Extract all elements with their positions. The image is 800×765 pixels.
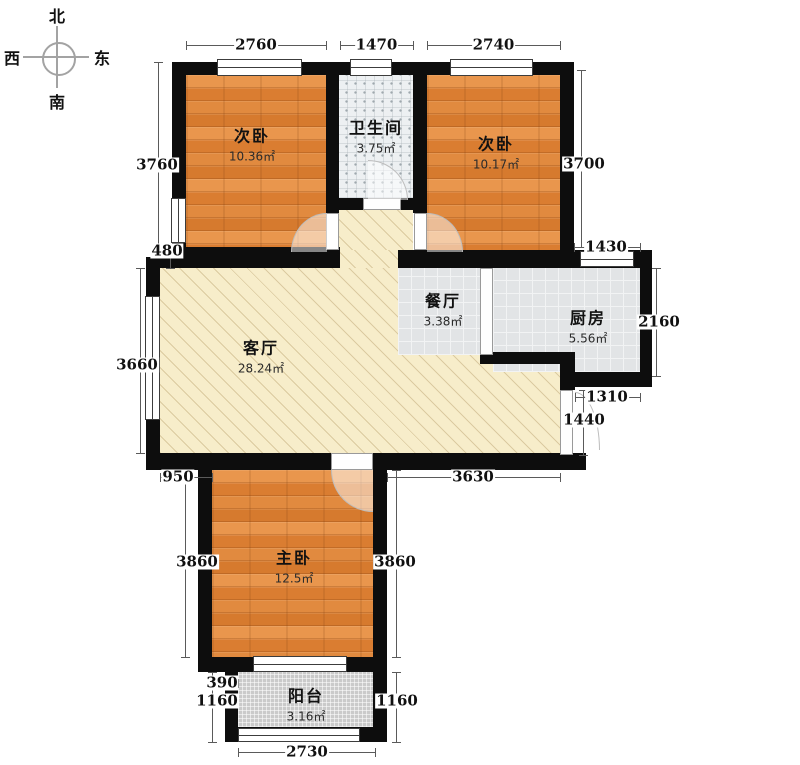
- dimension-tick: [575, 393, 576, 402]
- door-frame-bedroom-right: [414, 213, 427, 250]
- dimension-tick: [208, 742, 217, 743]
- door-frame-master: [331, 453, 373, 470]
- dimension-tick: [136, 268, 145, 269]
- dimension-tick: [392, 470, 401, 471]
- dimension-tick: [154, 62, 163, 63]
- room-name: 阳台: [287, 688, 326, 705]
- room-label-bedroom-right: 次卧 10.17㎡: [473, 136, 519, 173]
- wall-bedroom-right-south: [398, 250, 574, 268]
- dimension-tick: [427, 41, 428, 50]
- dimension-tick: [413, 41, 414, 50]
- compass-west-label: 西: [4, 45, 20, 69]
- window-bedroom-right-north: [450, 59, 533, 76]
- compass-circle: [42, 42, 76, 76]
- dimension-tick: [574, 243, 575, 252]
- dimension-label: 390: [205, 676, 238, 691]
- dimension-tick: [186, 41, 187, 50]
- dimension-tick: [560, 473, 561, 482]
- floor-hallway-lower: [338, 250, 398, 268]
- room-label-bathroom: 卫生间 3.75㎡: [349, 120, 403, 157]
- room-label-dining: 餐厅 3.38㎡: [424, 293, 463, 330]
- dimension-tick: [375, 748, 376, 757]
- dimension-label: 1470: [355, 38, 399, 53]
- door-frame-bedroom-left: [326, 213, 339, 250]
- room-area: 28.24㎡: [238, 360, 284, 377]
- dimension-tick: [579, 455, 588, 456]
- room-area: 10.36㎡: [229, 148, 275, 165]
- dimension-tick: [340, 41, 341, 50]
- room-name: 次卧: [229, 128, 275, 145]
- window-master-balcony-door: [253, 656, 347, 672]
- dimension-tick: [652, 376, 661, 377]
- dimension-label: 3660: [115, 358, 159, 373]
- dimension-label: 2160: [637, 315, 681, 330]
- dimension-label: 1160: [375, 694, 419, 709]
- room-name: 次卧: [473, 136, 519, 153]
- dimension-tick: [640, 393, 641, 402]
- dimension-label: 2730: [285, 745, 329, 760]
- wall-kitchen-south-right: [560, 372, 652, 387]
- dimension-label: 1310: [585, 390, 629, 405]
- dimension-tick: [577, 70, 586, 71]
- floor-plan: 北 南 西 东: [0, 0, 800, 765]
- window-bedroom-left-west: [171, 198, 186, 243]
- dimension-tick: [212, 473, 213, 482]
- dimension-label: 3700: [562, 157, 606, 172]
- dimension-label: 3860: [175, 555, 219, 570]
- dimension-tick: [166, 268, 175, 269]
- dimension-tick: [392, 657, 401, 658]
- room-area: 3.38㎡: [424, 313, 463, 330]
- dimension-label: 1160: [195, 694, 239, 709]
- dimension-label: 3630: [451, 470, 495, 485]
- wall-bathroom-east: [413, 62, 427, 213]
- room-name: 主卧: [275, 550, 314, 567]
- room-area: 3.75㎡: [349, 140, 403, 157]
- window-bedroom-left-north: [217, 59, 302, 76]
- dimension-label: 3760: [135, 158, 179, 173]
- dimension-tick: [560, 41, 561, 50]
- room-label-master: 主卧 12.5㎡: [275, 550, 314, 587]
- room-label-kitchen: 厨房 5.56㎡: [569, 310, 608, 347]
- dimension-tick: [238, 748, 239, 757]
- room-name: 卫生间: [349, 120, 403, 137]
- wall-bedroom-left-east: [326, 62, 339, 213]
- dimension-tick: [392, 742, 401, 743]
- room-area: 5.56㎡: [569, 330, 608, 347]
- dimension-label: 3860: [373, 555, 417, 570]
- room-label-balcony: 阳台 3.16㎡: [287, 688, 326, 725]
- dimension-tick: [136, 453, 145, 454]
- dimension-label: 1430: [584, 240, 628, 255]
- dimension-label: 950: [161, 470, 194, 485]
- room-area: 10.17㎡: [473, 156, 519, 173]
- room-label-bedroom-left: 次卧 10.36㎡: [229, 128, 275, 165]
- room-area: 12.5㎡: [275, 570, 314, 587]
- compass: 北 南 西 东: [0, 0, 118, 118]
- window-balcony-south: [238, 728, 360, 742]
- room-area: 3.16㎡: [287, 708, 326, 725]
- door-frame-dining-kitchen: [480, 268, 493, 355]
- compass-north-label: 北: [49, 3, 65, 27]
- dimension-tick: [640, 243, 641, 252]
- dimension-label: 2760: [234, 38, 278, 53]
- dimension-tick: [181, 657, 190, 658]
- floor-hallway-upper: [338, 210, 413, 253]
- window-bathroom-north: [350, 59, 392, 76]
- room-name: 餐厅: [424, 293, 463, 310]
- room-name: 客厅: [238, 340, 284, 357]
- dimension-tick: [652, 268, 661, 269]
- dimension-tick: [387, 473, 388, 482]
- room-label-living: 客厅 28.24㎡: [238, 340, 284, 377]
- dimension-tick: [392, 672, 401, 673]
- dimension-tick: [326, 41, 327, 50]
- dimension-label: 1440: [562, 413, 606, 428]
- dimension-label: 2740: [472, 38, 516, 53]
- dimension-label: 480: [150, 244, 183, 259]
- compass-east-label: 东: [94, 45, 110, 69]
- room-name: 厨房: [569, 310, 608, 327]
- dimension-line: [158, 62, 159, 247]
- compass-south-label: 南: [49, 89, 65, 113]
